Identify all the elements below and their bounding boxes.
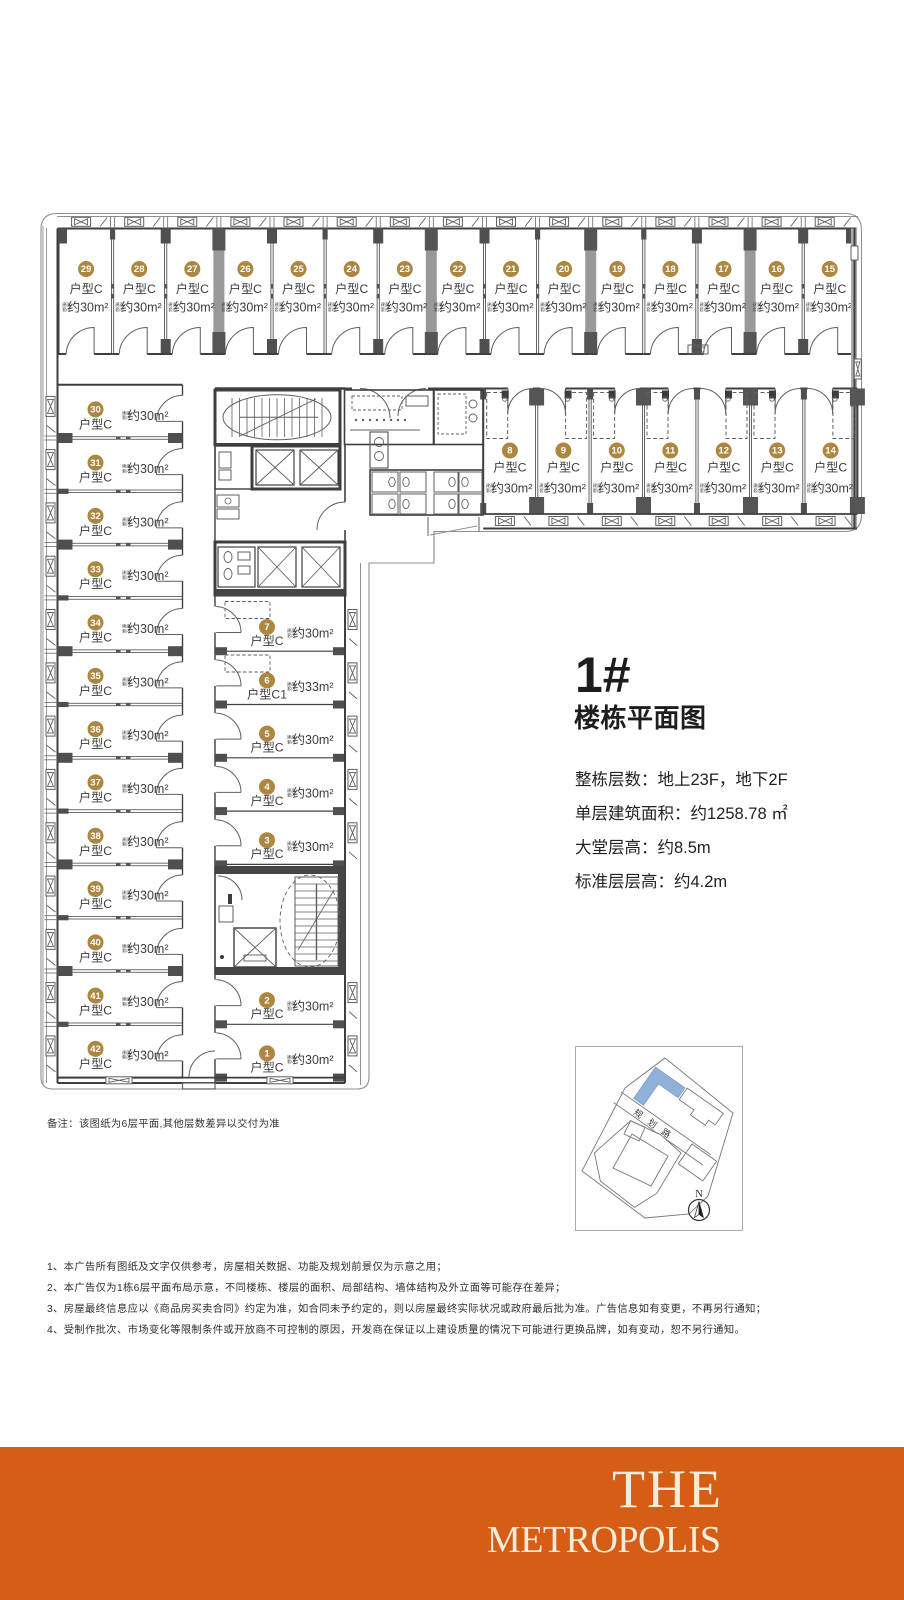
svg-text:约30m²: 约30m²: [758, 300, 799, 315]
svg-text:35: 35: [90, 671, 101, 682]
svg-text:户型C1: 户型C1: [247, 686, 287, 701]
svg-text:42: 42: [90, 1044, 101, 1055]
svg-text:34: 34: [90, 618, 101, 629]
svg-text:户型C: 户型C: [123, 281, 156, 296]
svg-text:约30m²: 约30m²: [128, 461, 169, 476]
svg-text:约30m²: 约30m²: [128, 834, 169, 849]
svg-text:37: 37: [90, 778, 101, 789]
svg-text:4: 4: [264, 782, 270, 793]
svg-text:41: 41: [90, 991, 101, 1002]
svg-text:约30m²: 约30m²: [227, 300, 268, 315]
svg-text:约30m²: 约30m²: [128, 994, 169, 1009]
svg-text:约30m²: 约30m²: [174, 300, 215, 315]
svg-text:6: 6: [264, 676, 269, 687]
svg-text:约30m²: 约30m²: [128, 514, 169, 529]
svg-text:约30m²: 约30m²: [545, 481, 586, 496]
svg-text:户型C: 户型C: [600, 460, 633, 475]
svg-text:约30m²: 约30m²: [293, 999, 334, 1014]
svg-text:26: 26: [240, 264, 251, 275]
svg-text:户型C: 户型C: [761, 460, 794, 475]
svg-text:户型C: 户型C: [79, 1056, 112, 1071]
svg-text:8: 8: [507, 446, 512, 457]
svg-text:28: 28: [134, 264, 145, 275]
svg-text:户型C: 户型C: [79, 1003, 112, 1018]
svg-text:户型C: 户型C: [79, 843, 112, 858]
svg-text:约30m²: 约30m²: [493, 300, 534, 315]
svg-text:户型C: 户型C: [79, 949, 112, 964]
svg-text:户型C: 户型C: [814, 460, 847, 475]
svg-text:约30m²: 约30m²: [811, 300, 852, 315]
svg-text:户型C: 户型C: [494, 281, 527, 296]
svg-text:约30m²: 约30m²: [333, 300, 374, 315]
svg-text:户型C: 户型C: [441, 281, 474, 296]
svg-text:户型C: 户型C: [79, 523, 112, 538]
svg-text:10: 10: [612, 446, 623, 457]
svg-text:户型C: 户型C: [548, 281, 581, 296]
svg-text:约30m²: 约30m²: [598, 481, 639, 496]
svg-text:40: 40: [90, 938, 101, 949]
svg-text:30: 30: [90, 405, 101, 416]
svg-text:户型C: 户型C: [654, 281, 687, 296]
svg-text:39: 39: [90, 884, 101, 895]
svg-text:户型C: 户型C: [70, 281, 103, 296]
svg-text:33: 33: [90, 565, 101, 576]
svg-text:14: 14: [825, 446, 836, 457]
svg-text:户型C: 户型C: [601, 281, 634, 296]
svg-text:12: 12: [718, 446, 729, 457]
svg-text:约30m²: 约30m²: [128, 408, 169, 423]
svg-text:约30m²: 约30m²: [280, 300, 321, 315]
svg-text:户型C: 户型C: [79, 576, 112, 591]
svg-text:5: 5: [264, 729, 270, 740]
svg-text:约30m²: 约30m²: [812, 481, 853, 496]
svg-text:约30m²: 约30m²: [599, 300, 640, 315]
svg-text:约30m²: 约30m²: [293, 1052, 334, 1067]
svg-text:约30m²: 约30m²: [128, 941, 169, 956]
svg-text:户型C: 户型C: [654, 460, 687, 475]
svg-text:户型C: 户型C: [707, 460, 740, 475]
svg-text:户型C: 户型C: [250, 793, 283, 808]
svg-text:21: 21: [506, 264, 517, 275]
svg-text:约30m²: 约30m²: [128, 781, 169, 796]
svg-text:户型C: 户型C: [707, 281, 740, 296]
svg-text:户型C: 户型C: [388, 281, 421, 296]
svg-text:约30m²: 约30m²: [128, 1047, 169, 1062]
svg-text:户型C: 户型C: [79, 470, 112, 485]
svg-text:约30m²: 约30m²: [705, 481, 746, 496]
svg-text:13: 13: [772, 446, 783, 457]
svg-text:约30m²: 约30m²: [121, 300, 162, 315]
svg-text:23: 23: [400, 264, 411, 275]
svg-text:22: 22: [453, 264, 464, 275]
svg-text:7: 7: [264, 622, 269, 633]
svg-text:17: 17: [718, 264, 729, 275]
svg-text:36: 36: [90, 724, 101, 735]
svg-text:约33m²: 约33m²: [293, 679, 334, 694]
svg-text:户型C: 户型C: [813, 281, 846, 296]
svg-text:16: 16: [771, 264, 782, 275]
svg-text:9: 9: [561, 446, 566, 457]
svg-text:38: 38: [90, 831, 101, 842]
svg-text:户型C: 户型C: [79, 683, 112, 698]
svg-text:约30m²: 约30m²: [128, 674, 169, 689]
svg-text:约30m²: 约30m²: [128, 568, 169, 583]
svg-text:户型C: 户型C: [79, 630, 112, 645]
svg-text:户型C: 户型C: [79, 896, 112, 911]
svg-text:约30m²: 约30m²: [652, 300, 693, 315]
svg-text:2: 2: [264, 995, 269, 1006]
svg-text:3: 3: [264, 836, 269, 847]
svg-text:户型C: 户型C: [250, 1006, 283, 1021]
svg-text:31: 31: [90, 458, 101, 469]
svg-text:约30m²: 约30m²: [293, 785, 334, 800]
svg-text:32: 32: [90, 511, 101, 522]
svg-text:户型C: 户型C: [335, 281, 368, 296]
svg-text:户型C: 户型C: [79, 736, 112, 751]
svg-text:户型C: 户型C: [250, 633, 283, 648]
svg-text:约30m²: 约30m²: [293, 839, 334, 854]
svg-text:约30m²: 约30m²: [293, 732, 334, 747]
svg-text:27: 27: [187, 264, 198, 275]
svg-text:户型C: 户型C: [176, 281, 209, 296]
svg-text:约30m²: 约30m²: [128, 728, 169, 743]
svg-text:约30m²: 约30m²: [386, 300, 427, 315]
svg-text:约30m²: 约30m²: [759, 481, 800, 496]
svg-text:约30m²: 约30m²: [128, 888, 169, 903]
svg-text:11: 11: [665, 446, 676, 457]
svg-text:户型C: 户型C: [282, 281, 315, 296]
svg-text:20: 20: [559, 264, 570, 275]
svg-text:约30m²: 约30m²: [293, 626, 334, 641]
svg-text:户型C: 户型C: [250, 846, 283, 861]
svg-text:户型C: 户型C: [493, 460, 526, 475]
svg-text:约30m²: 约30m²: [546, 300, 587, 315]
svg-text:29: 29: [81, 264, 92, 275]
svg-text:15: 15: [824, 264, 835, 275]
svg-text:18: 18: [665, 264, 676, 275]
svg-text:约30m²: 约30m²: [705, 300, 746, 315]
svg-text:户型C: 户型C: [79, 789, 112, 804]
svg-text:约30m²: 约30m²: [439, 300, 480, 315]
svg-text:1: 1: [264, 1049, 270, 1060]
svg-text:户型C: 户型C: [760, 281, 793, 296]
svg-text:约30m²: 约30m²: [128, 621, 169, 636]
svg-text:约30m²: 约30m²: [491, 481, 532, 496]
svg-text:约30m²: 约30m²: [652, 481, 693, 496]
svg-text:户型C: 户型C: [250, 740, 283, 755]
svg-text:约30m²: 约30m²: [68, 300, 109, 315]
svg-text:25: 25: [293, 264, 304, 275]
svg-text:24: 24: [346, 264, 357, 275]
svg-text:N: N: [695, 1189, 703, 1200]
svg-text:户型C: 户型C: [547, 460, 580, 475]
svg-text:户型C: 户型C: [250, 1059, 283, 1074]
svg-text:19: 19: [612, 264, 623, 275]
svg-text:户型C: 户型C: [229, 281, 262, 296]
svg-text:户型C: 户型C: [79, 416, 112, 431]
